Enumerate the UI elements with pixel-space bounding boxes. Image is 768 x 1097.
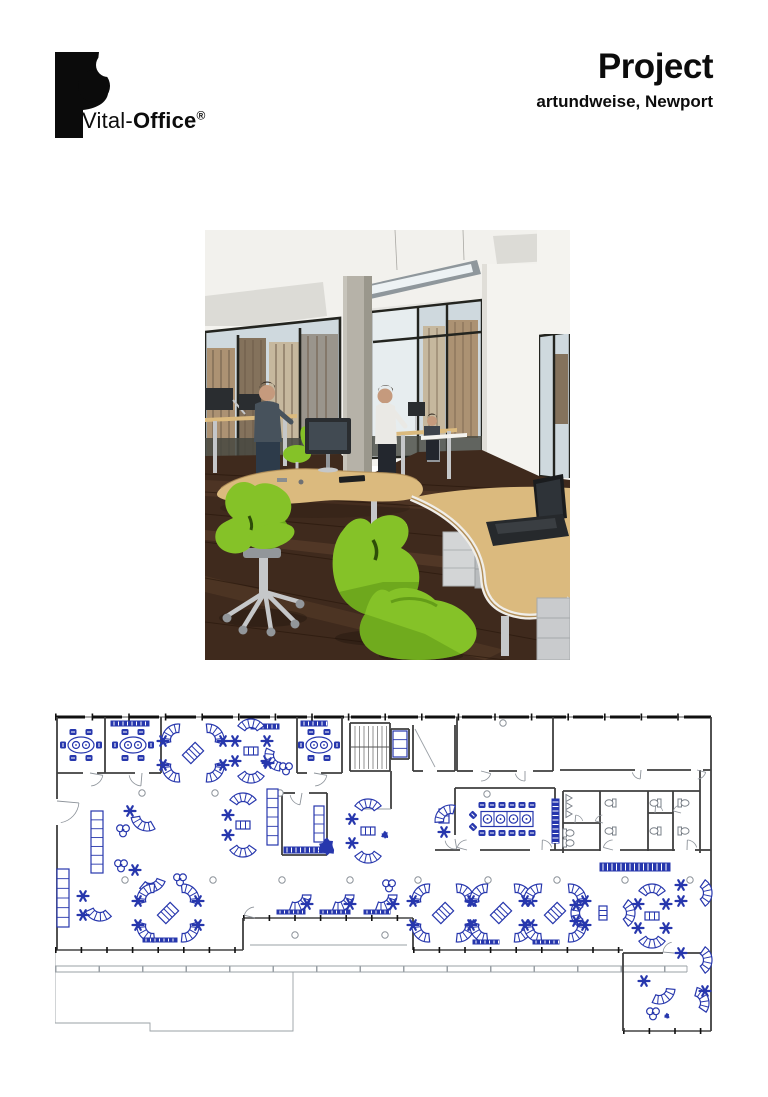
- page-subtitle: artundweise, Newport: [536, 92, 713, 112]
- floorplan-svg: [55, 713, 715, 1043]
- window-right: [539, 332, 570, 480]
- registered-mark: ®: [197, 109, 206, 123]
- title-block: Project artundweise, Newport: [536, 48, 713, 112]
- page-title: Project: [536, 48, 713, 87]
- office-photo: [205, 230, 570, 660]
- brand-suffix: Office: [133, 108, 197, 133]
- vital-office-logo: Vital-Office®: [55, 52, 315, 142]
- monitor-icon: [205, 388, 233, 410]
- brand-prefix: Vital-: [82, 108, 133, 133]
- document-page: Vital-Office® Project artundweise, Newpo…: [0, 0, 768, 1097]
- floorplan-drawing: [55, 713, 715, 1043]
- brand-text: Vital-Office®: [82, 108, 206, 134]
